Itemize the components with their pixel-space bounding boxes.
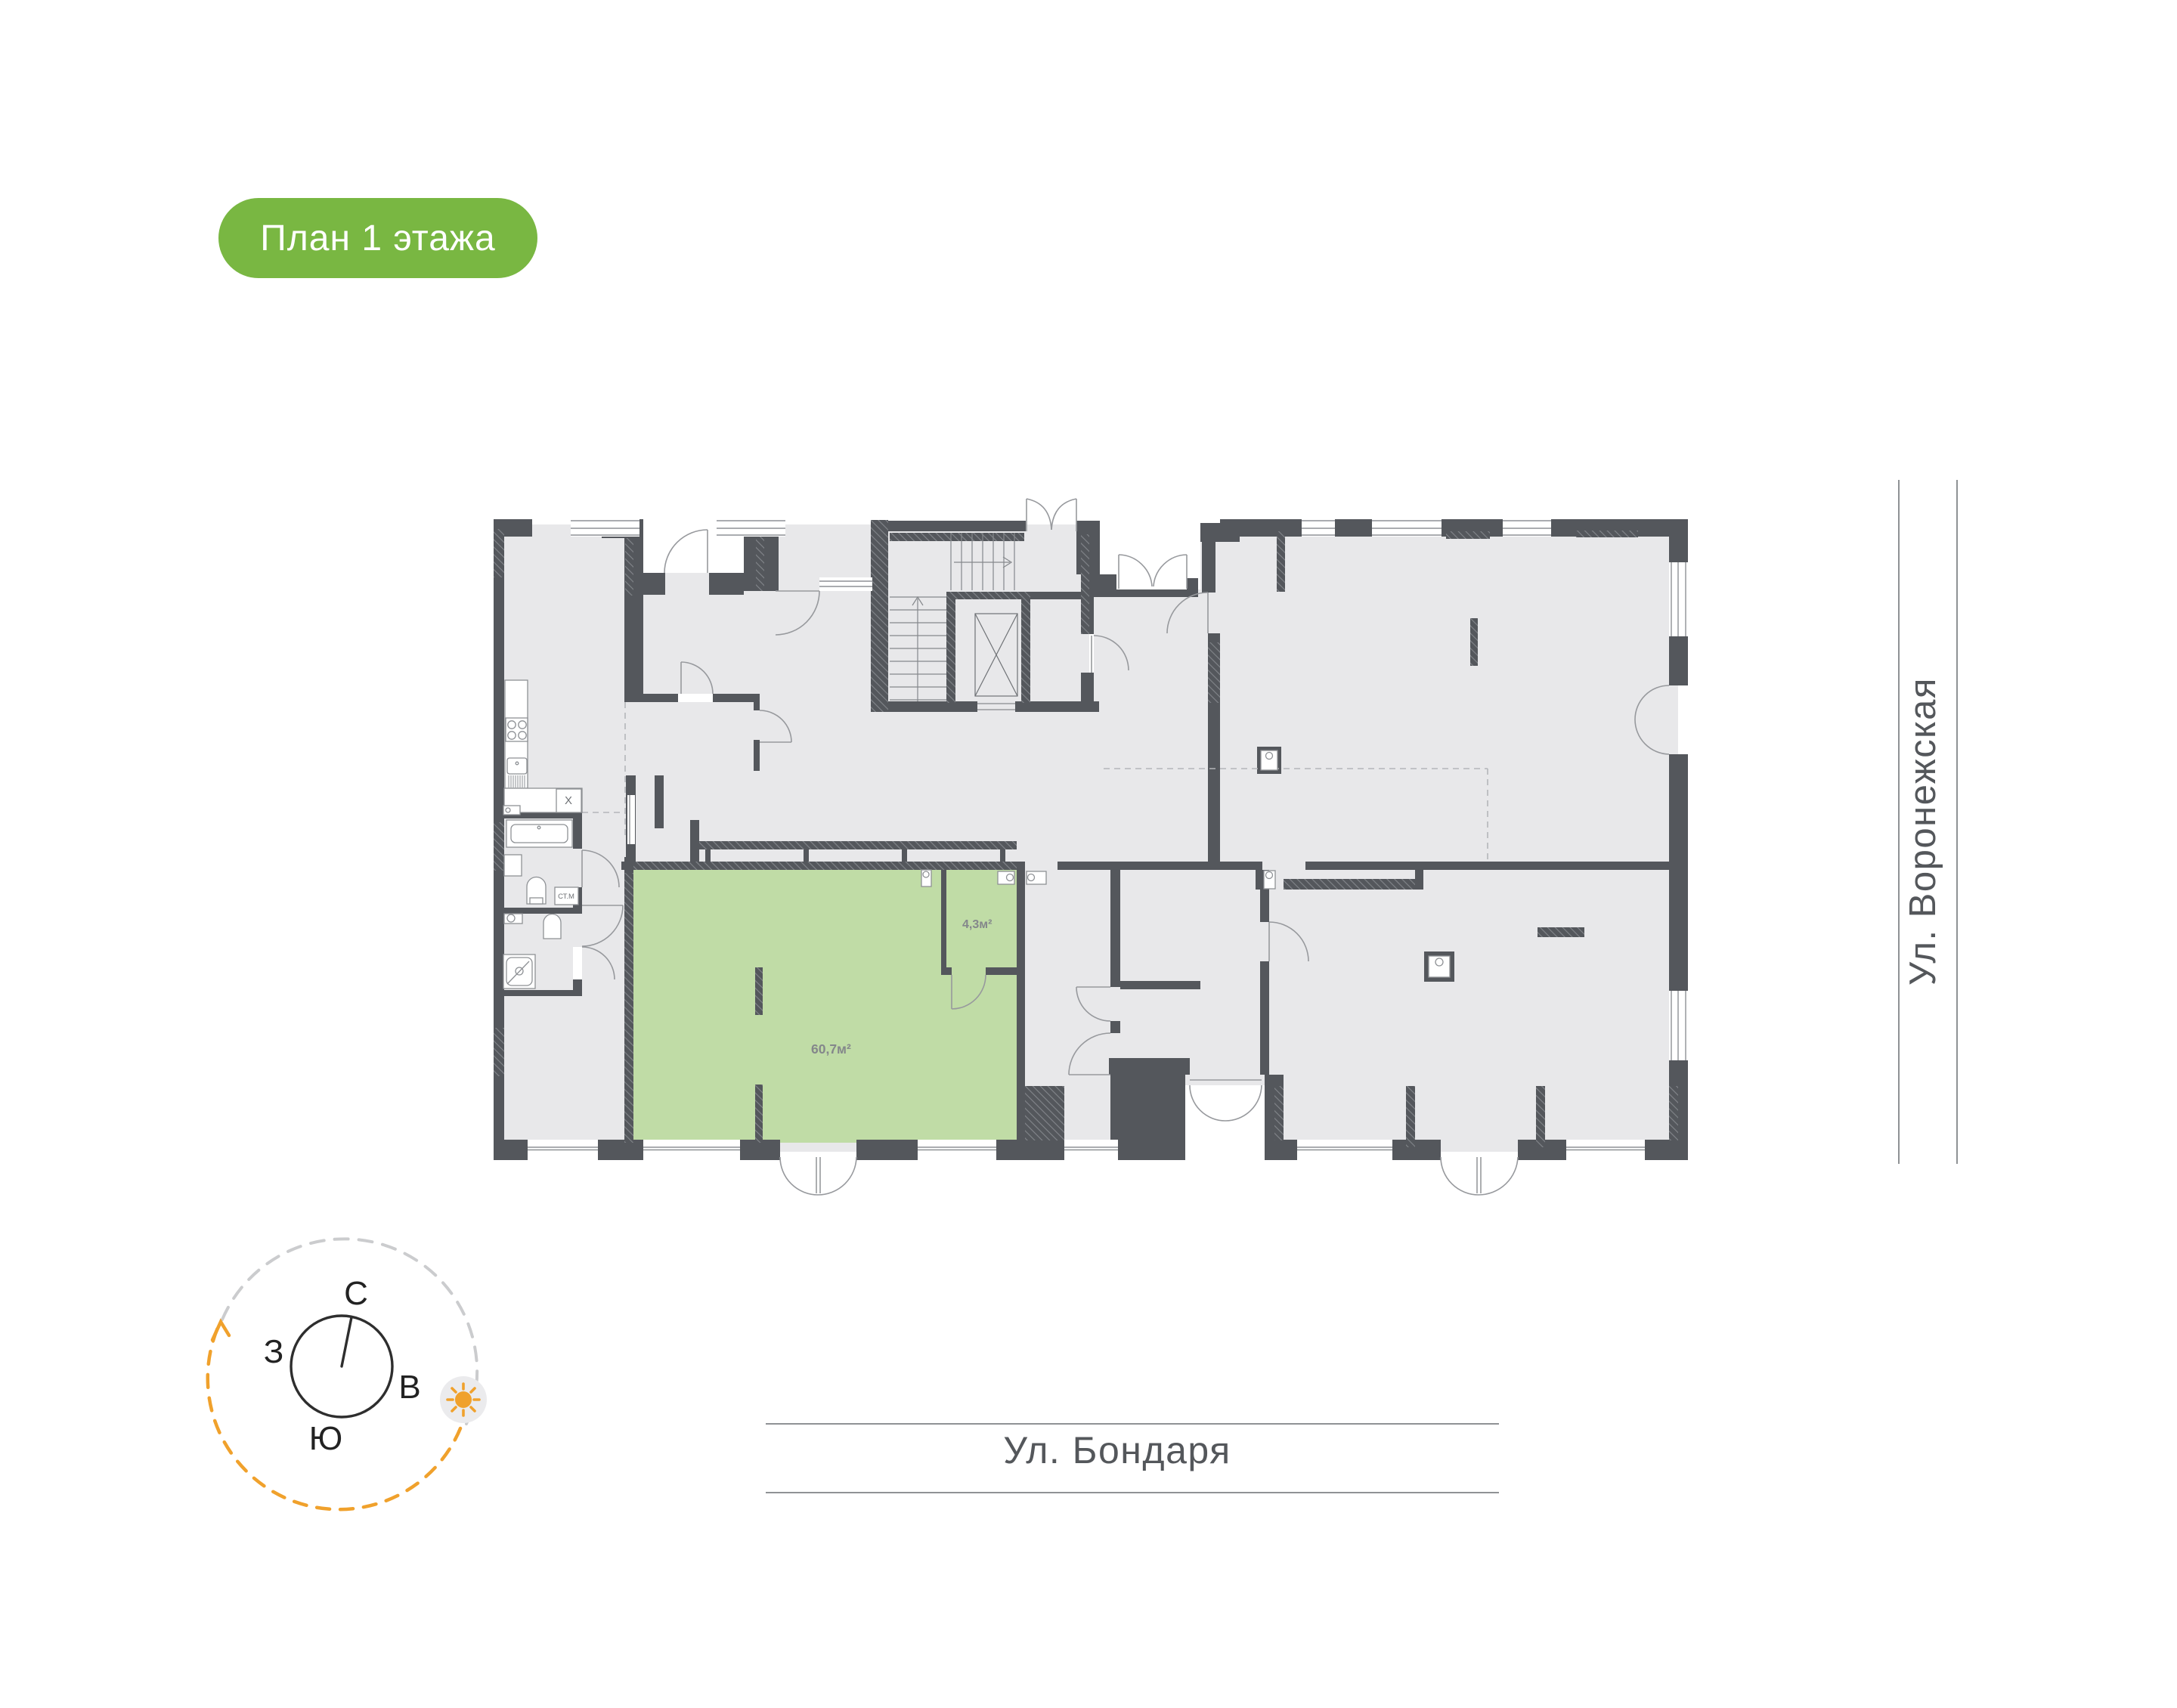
svg-text:СТ.М: СТ.М xyxy=(558,893,574,901)
svg-text:Ул. Воронежская: Ул. Воронежская xyxy=(1903,677,1943,986)
svg-text:Ул. Бондаря: Ул. Бондаря xyxy=(1003,1429,1231,1471)
svg-text:X: X xyxy=(565,794,572,807)
svg-text:60,7м²: 60,7м² xyxy=(811,1041,851,1057)
svg-text:В: В xyxy=(398,1369,420,1406)
svg-text:С: С xyxy=(344,1275,368,1312)
svg-text:Ю: Ю xyxy=(309,1420,342,1457)
svg-text:З: З xyxy=(264,1333,284,1370)
svg-text:4,3м²: 4,3м² xyxy=(962,918,992,931)
svg-text:План 1 этажа: План 1 этажа xyxy=(260,218,495,258)
